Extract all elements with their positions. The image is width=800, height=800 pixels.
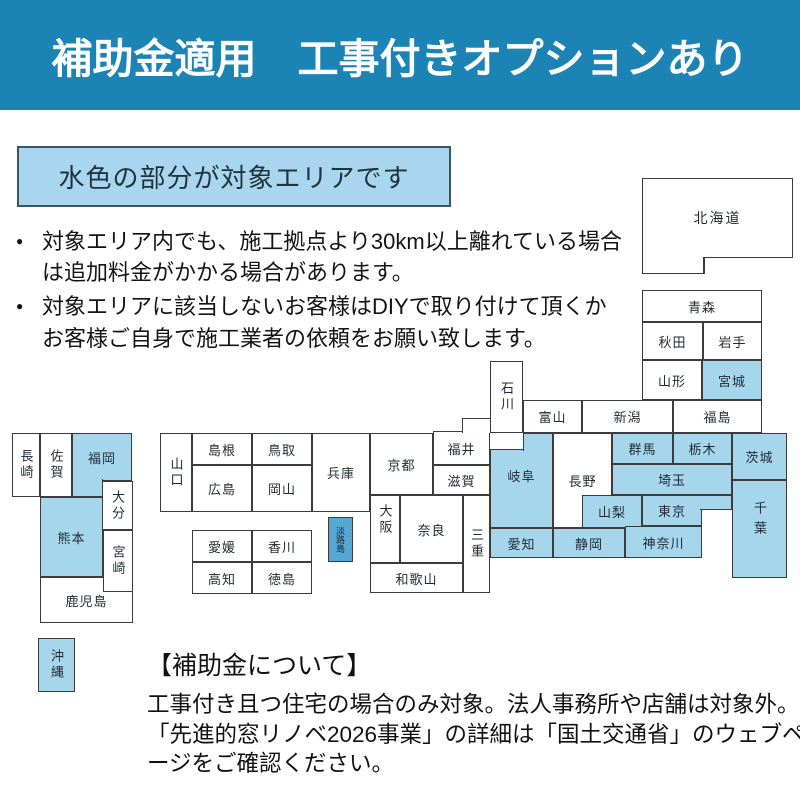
prefecture-label: 石川 <box>497 381 516 413</box>
prefecture-label: 福島 <box>703 407 731 426</box>
hokkaido-coast-step-line <box>703 257 705 274</box>
prefecture-label: 岡山 <box>268 479 296 498</box>
prefecture-tottori: 鳥取 <box>252 433 312 465</box>
prefecture-shizuoka: 静岡 <box>553 528 625 558</box>
prefecture-chiba: 千葉 <box>732 480 787 578</box>
prefecture-label: 佐賀 <box>47 449 66 481</box>
prefecture-toyama: 富山 <box>523 400 582 433</box>
prefecture-gifu-north-arm <box>523 433 553 451</box>
prefecture-osaka: 大阪 <box>370 495 400 563</box>
subsidy-note: 【補助金について】 工事付き且つ住宅の場合のみ対象。法人事務所や店舗は対象外。「… <box>147 646 800 779</box>
prefecture-mie: 三重 <box>463 495 490 593</box>
subsidy-note-body: 工事付き且つ住宅の場合のみ対象。法人事務所や店舗は対象外。「先進的窓リノベ202… <box>147 690 800 779</box>
subsidy-note-title: 【補助金について】 <box>147 646 800 682</box>
prefecture-tochigi: 栃木 <box>673 433 732 464</box>
prefecture-hiroshima: 広島 <box>192 465 252 512</box>
prefecture-kumamoto: 熊本 <box>40 497 103 577</box>
island-awajishima: 淡路島 <box>328 517 353 562</box>
prefecture-yamanashi: 山梨 <box>582 495 642 528</box>
prefecture-label: 鳥取 <box>268 440 296 459</box>
prefecture-label: 宮城 <box>718 371 746 390</box>
prefecture-label: 東京 <box>658 501 686 520</box>
prefecture-saga: 佐賀 <box>40 433 72 497</box>
prefecture-label: 京都 <box>387 455 415 474</box>
prefecture-okinawa: 沖縄 <box>38 638 75 692</box>
prefecture-label: 富山 <box>538 407 566 426</box>
prefecture-label: 福岡 <box>88 448 116 467</box>
prefecture-label: 大分 <box>108 490 127 522</box>
prefecture-okayama: 岡山 <box>252 465 312 512</box>
prefecture-label: 千葉 <box>750 501 769 541</box>
prefecture-label: 和歌山 <box>395 569 437 588</box>
prefecture-fukuoka: 福岡 <box>72 433 132 481</box>
prefecture-niigata: 新潟 <box>582 400 673 433</box>
prefecture-kyoto: 京都 <box>370 433 433 495</box>
prefecture-nara: 奈良 <box>400 495 463 563</box>
prefecture-label: 愛媛 <box>208 537 236 556</box>
prefecture-miyagi: 宮城 <box>702 360 762 400</box>
prefecture-yamaguchi: 山口 <box>160 433 192 512</box>
prefecture-akita: 秋田 <box>642 322 703 360</box>
prefecture-label: 山形 <box>658 371 686 390</box>
prefecture-yamagata: 山形 <box>642 360 702 400</box>
prefecture-label: 滋賀 <box>447 471 475 490</box>
prefecture-kanagawa: 神奈川 <box>625 526 702 558</box>
prefecture-label: 栃木 <box>688 439 716 458</box>
prefecture-label: 長野 <box>568 471 596 490</box>
prefecture-label: 淡路島 <box>334 526 347 553</box>
prefecture-tokyo: 東京 <box>642 495 702 526</box>
prefecture-label: 青森 <box>688 297 716 316</box>
prefecture-label: 熊本 <box>57 528 85 547</box>
prefecture-label: 神奈川 <box>642 533 684 552</box>
prefecture-kagawa: 香川 <box>252 530 312 562</box>
prefecture-label: 群馬 <box>628 439 656 458</box>
prefecture-label: 福井 <box>447 439 475 458</box>
prefecture-shimane: 島根 <box>192 433 252 465</box>
prefecture-oita: 大分 <box>102 481 133 530</box>
prefecture-label: 秋田 <box>658 332 686 351</box>
prefecture-label: 静岡 <box>575 534 603 553</box>
prefecture-label: 徳島 <box>268 569 296 588</box>
prefecture-ibaraki: 茨城 <box>732 433 787 480</box>
prefecture-label: 宮崎 <box>109 545 128 577</box>
prefecture-ehime: 愛媛 <box>192 530 252 562</box>
prefecture-label: 長崎 <box>17 449 36 481</box>
prefecture-fukushima: 福島 <box>673 400 762 433</box>
prefecture-label: 三重 <box>467 528 486 560</box>
prefecture-label: 岐阜 <box>507 466 535 485</box>
prefecture-nagasaki: 長崎 <box>12 433 40 497</box>
prefecture-tokushima: 徳島 <box>252 562 312 594</box>
prefecture-label: 茨城 <box>745 447 773 466</box>
prefecture-kochi: 高知 <box>192 562 252 594</box>
prefecture-fukui-north-tip <box>462 418 490 433</box>
prefecture-label: 広島 <box>208 479 236 498</box>
prefecture-saitama: 埼玉 <box>612 464 732 495</box>
prefecture-wakayama: 和歌山 <box>370 563 463 593</box>
prefecture-shiga: 滋賀 <box>433 465 490 495</box>
prefecture-label: 奈良 <box>417 520 445 539</box>
prefecture-fukui: 福井 <box>433 431 490 465</box>
prefecture-label: 大阪 <box>376 504 395 536</box>
prefecture-label: 新潟 <box>613 407 641 426</box>
prefecture-fukuoka-south-ext <box>72 479 103 497</box>
prefecture-gunma: 群馬 <box>612 433 673 464</box>
prefecture-aomori: 青森 <box>642 290 762 322</box>
prefecture-iwate: 岩手 <box>703 322 762 360</box>
prefecture-label: 埼玉 <box>658 470 686 489</box>
prefecture-label: 鹿児島 <box>65 591 107 610</box>
prefecture-label: 香川 <box>268 537 296 556</box>
prefecture-label: 愛知 <box>507 534 535 553</box>
prefecture-miyazaki: 宮崎 <box>103 530 133 592</box>
prefecture-tokyo-east-arm <box>700 495 732 510</box>
prefecture-label: 兵庫 <box>327 463 355 482</box>
prefecture-label: 岩手 <box>718 332 746 351</box>
prefecture-label: 山口 <box>167 457 186 489</box>
prefecture-label: 沖縄 <box>47 649 66 681</box>
prefecture-label: 島根 <box>208 440 236 459</box>
prefecture-ishikawa: 石川 <box>490 361 523 433</box>
prefecture-aichi: 愛知 <box>490 528 553 558</box>
prefecture-hyogo: 兵庫 <box>312 433 370 512</box>
prefecture-hokkaido-label-area: 北海道 <box>642 178 793 258</box>
prefecture-label: 高知 <box>208 569 236 588</box>
prefecture-label: 北海道 <box>694 208 742 228</box>
prefecture-label: 山梨 <box>598 502 626 521</box>
prefecture-gifu: 岐阜 <box>490 449 553 528</box>
